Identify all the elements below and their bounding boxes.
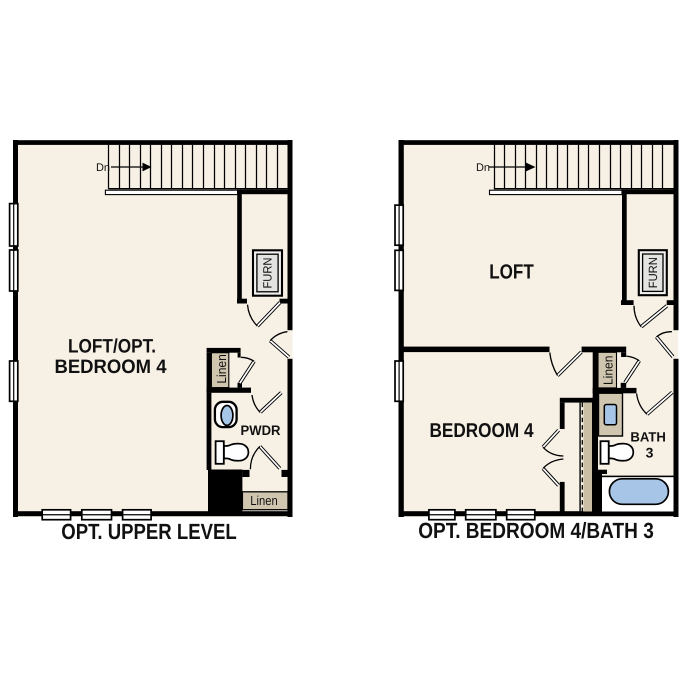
svg-text:FURN: FURN xyxy=(261,258,275,289)
svg-text:PWDR: PWDR xyxy=(241,423,281,438)
svg-text:LOFT/OPT.: LOFT/OPT. xyxy=(68,335,156,357)
svg-text:OPT. BEDROOM 4/BATH 3: OPT. BEDROOM 4/BATH 3 xyxy=(418,518,654,543)
svg-text:Dn: Dn xyxy=(96,162,110,174)
svg-text:Linen: Linen xyxy=(250,493,278,508)
svg-text:3: 3 xyxy=(646,445,654,461)
svg-text:FURN: FURN xyxy=(646,257,660,288)
svg-text:BATH: BATH xyxy=(630,429,666,444)
svg-text:Dn: Dn xyxy=(476,162,490,174)
svg-text:LOFT: LOFT xyxy=(489,260,534,283)
svg-text:Linen: Linen xyxy=(600,356,615,386)
svg-text:BEDROOM 4: BEDROOM 4 xyxy=(55,356,167,378)
svg-text:BEDROOM 4: BEDROOM 4 xyxy=(430,420,535,442)
svg-text:OPT. UPPER LEVEL: OPT. UPPER LEVEL xyxy=(61,519,237,544)
svg-text:Linen: Linen xyxy=(214,354,229,384)
